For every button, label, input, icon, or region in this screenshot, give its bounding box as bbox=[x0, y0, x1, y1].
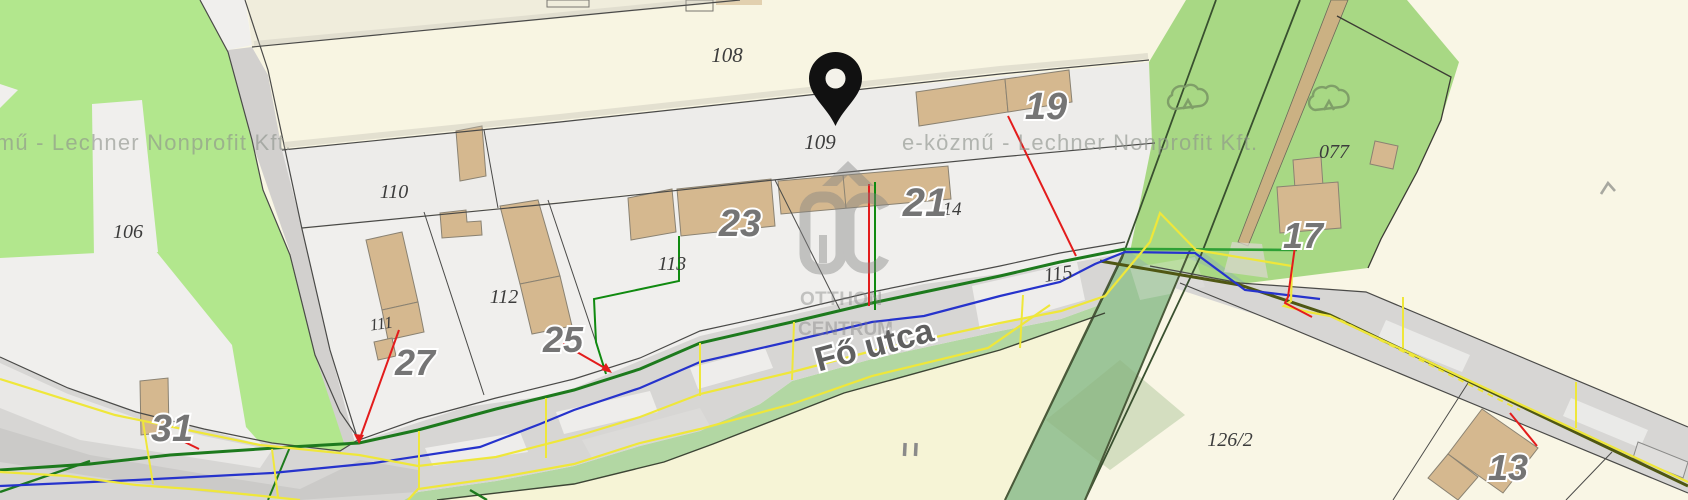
svg-text:23: 23 bbox=[718, 203, 761, 245]
svg-text:31: 31 bbox=[151, 408, 193, 450]
svg-text:106: 106 bbox=[113, 221, 143, 243]
svg-text:112: 112 bbox=[490, 286, 519, 308]
svg-text:25: 25 bbox=[542, 319, 584, 360]
svg-text:CENTRUM: CENTRUM bbox=[798, 319, 893, 340]
svg-text:e-közmű - Lechner Nonprofit Kf: e-közmű - Lechner Nonprofit Kft. bbox=[902, 130, 1258, 155]
svg-text:115: 115 bbox=[1043, 261, 1074, 287]
svg-text:126/2: 126/2 bbox=[1207, 429, 1253, 451]
svg-text:21: 21 bbox=[902, 181, 948, 225]
svg-text:111: 111 bbox=[369, 313, 394, 335]
svg-text:13: 13 bbox=[1488, 447, 1528, 488]
svg-text:OTTHON: OTTHON bbox=[800, 289, 883, 310]
svg-text:113: 113 bbox=[658, 253, 687, 275]
svg-text:109: 109 bbox=[804, 130, 836, 154]
svg-text:17: 17 bbox=[1283, 215, 1325, 256]
svg-text:19: 19 bbox=[1025, 86, 1067, 128]
svg-text:27: 27 bbox=[394, 342, 437, 383]
svg-text:077: 077 bbox=[1319, 141, 1350, 163]
svg-text:110: 110 bbox=[380, 181, 409, 203]
svg-text:e-közmű - Lechner Nonprofit Kf: e-közmű - Lechner Nonprofit Kft. bbox=[0, 130, 292, 155]
svg-text:108: 108 bbox=[711, 43, 743, 67]
